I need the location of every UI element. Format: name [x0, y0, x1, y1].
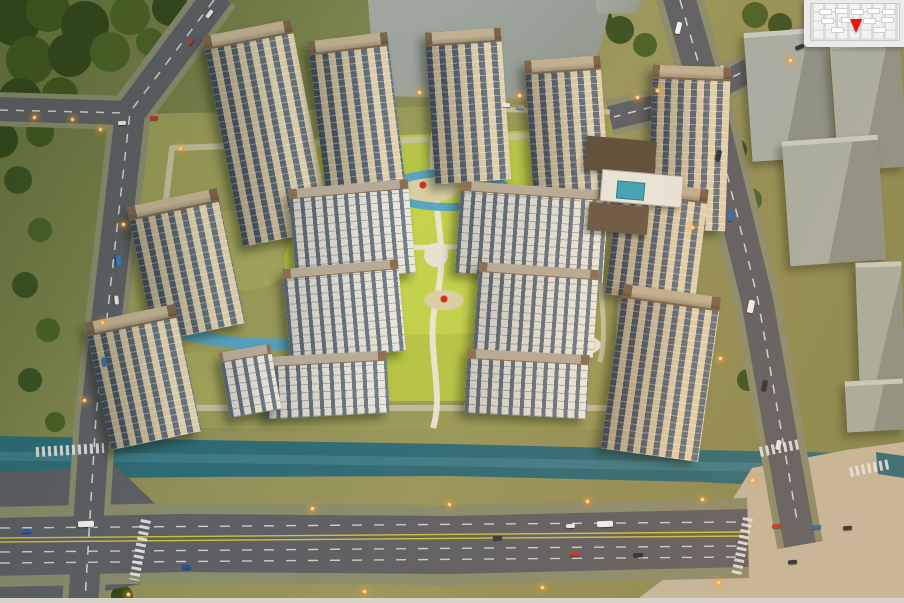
car — [843, 526, 852, 531]
street-light — [517, 93, 522, 98]
street-light — [655, 88, 660, 93]
street-light — [178, 146, 183, 151]
street-light — [82, 398, 87, 403]
inset-building-footprint — [867, 8, 880, 14]
street-light — [121, 222, 126, 227]
context-building-block — [782, 135, 886, 266]
clubhouse-roof-dark — [587, 202, 649, 235]
car — [502, 103, 510, 107]
street-light — [635, 95, 640, 100]
inset-site-plan — [804, 0, 904, 47]
street-light — [700, 497, 705, 502]
street-light — [718, 356, 723, 361]
inset-building-footprint — [873, 27, 886, 33]
street-light — [716, 580, 721, 585]
street-light — [362, 589, 367, 594]
street-light — [585, 499, 590, 504]
street-light — [98, 127, 103, 132]
residential-tower — [425, 28, 511, 185]
car — [570, 552, 579, 556]
car — [22, 529, 31, 533]
lowrise-slab — [464, 349, 589, 419]
context-building-block — [845, 379, 904, 433]
car — [788, 560, 797, 565]
inset-building-footprint — [881, 17, 894, 23]
midrise-slab — [282, 259, 406, 361]
lowrise-slab — [219, 344, 282, 418]
midrise-slab — [473, 262, 599, 358]
inset-building-footprint — [821, 18, 834, 24]
image-bottom-border — [0, 598, 904, 603]
car — [812, 525, 821, 530]
street-light — [540, 585, 545, 590]
playground-structure — [437, 292, 451, 306]
location-marker-arrow — [850, 19, 862, 39]
tower-roof — [652, 65, 730, 82]
inset-building-footprint — [882, 9, 895, 15]
context-development-pad — [596, 0, 642, 14]
car — [493, 536, 502, 540]
truck — [597, 521, 613, 528]
lowrise-slab — [262, 351, 389, 419]
inset-building-footprint — [819, 9, 832, 15]
street-light — [447, 502, 452, 507]
car — [150, 116, 158, 120]
street-light — [70, 117, 75, 122]
car — [182, 565, 191, 569]
street-light — [126, 592, 131, 597]
car — [516, 105, 524, 109]
street-light — [690, 225, 695, 230]
clubhouse-roof-dark — [584, 136, 657, 176]
street-light — [417, 90, 422, 95]
inset-building-footprint — [851, 9, 864, 15]
street-light — [32, 115, 37, 120]
truck — [78, 521, 94, 528]
street-light — [310, 506, 315, 511]
playground-structure — [416, 178, 430, 192]
car — [118, 121, 126, 125]
inset-building-footprint — [835, 8, 848, 14]
bus — [115, 255, 121, 266]
car — [772, 524, 781, 529]
street-light — [100, 320, 105, 325]
inset-building-footprint — [863, 18, 876, 24]
clubhouse-pool — [616, 180, 645, 200]
plaza-round — [424, 243, 448, 267]
car — [102, 357, 107, 366]
rendering-canvas — [0, 0, 904, 603]
car — [566, 524, 575, 528]
street-light — [750, 478, 755, 483]
tree-row-left-edge — [4, 166, 65, 432]
car — [114, 295, 119, 304]
car — [633, 553, 643, 557]
street-light — [788, 58, 793, 63]
clubhouse — [578, 128, 692, 245]
inset-building-footprint — [831, 27, 844, 33]
